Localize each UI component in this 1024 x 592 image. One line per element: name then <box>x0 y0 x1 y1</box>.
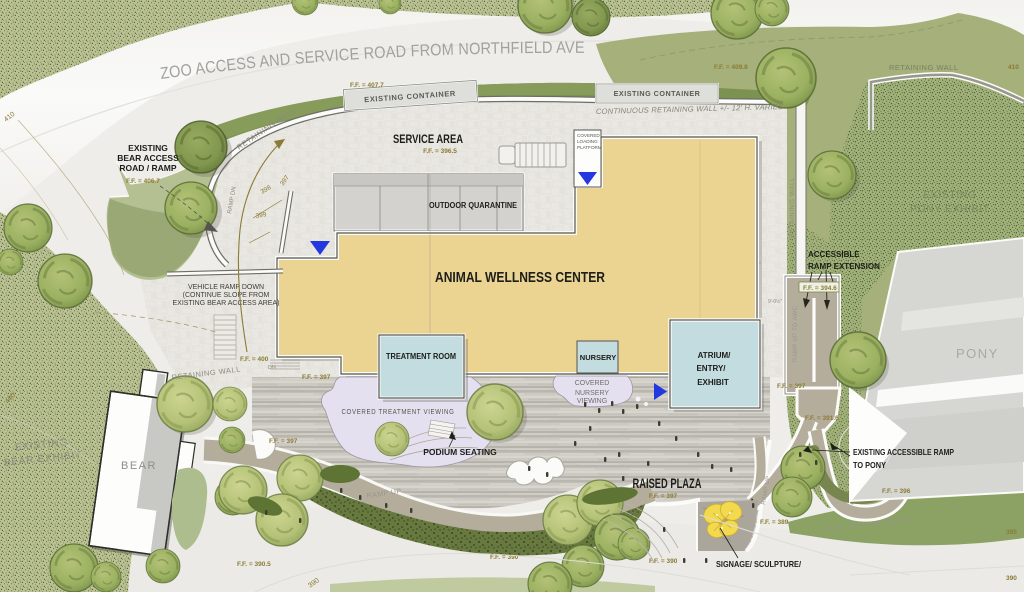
svg-text:F.F. = 394.6: F.F. = 394.6 <box>803 285 837 292</box>
svg-text:F.F. = 397: F.F. = 397 <box>777 383 806 390</box>
svg-text:EXISTING CONTAINER: EXISTING CONTAINER <box>614 89 701 98</box>
svg-text:ACCESSIBLE: ACCESSIBLE <box>808 250 860 259</box>
svg-text:F.F. = 390.5: F.F. = 390.5 <box>237 561 271 568</box>
svg-text:ANIMAL WELLNESS CENTER: ANIMAL WELLNESS CENTER <box>435 270 605 286</box>
svg-text:VIEWING: VIEWING <box>577 398 607 405</box>
svg-text:ENTRY/: ENTRY/ <box>696 364 726 373</box>
svg-text:NURSERY: NURSERY <box>580 353 616 362</box>
svg-text:BEAR ACCESS: BEAR ACCESS <box>117 153 179 163</box>
svg-text:395: 395 <box>1006 529 1017 536</box>
svg-text:RAMP UP TO AWC: RAMP UP TO AWC <box>793 305 799 362</box>
svg-text:PLATFORM: PLATFORM <box>577 145 602 150</box>
svg-text:410: 410 <box>1008 64 1019 71</box>
svg-text:390: 390 <box>1006 575 1017 582</box>
svg-text:EXISTING: EXISTING <box>128 143 168 153</box>
svg-text:SERVICE AREA: SERVICE AREA <box>393 132 463 146</box>
svg-text:SIGNAGE/ SCULPTURE/: SIGNAGE/ SCULPTURE/ <box>716 559 802 569</box>
svg-text:RETAINING WALL: RETAINING WALL <box>889 63 959 72</box>
svg-text:F.F. = 407.7: F.F. = 407.7 <box>350 82 384 89</box>
svg-text:F.F. = 396: F.F. = 396 <box>882 488 911 495</box>
svg-text:OUTDOOR QUARANTINE: OUTDOOR QUARANTINE <box>429 201 518 210</box>
svg-text:F.F. = 389: F.F. = 389 <box>760 519 789 526</box>
svg-text:ATRIUM/: ATRIUM/ <box>698 351 732 360</box>
svg-text:BEAR: BEAR <box>121 460 157 472</box>
svg-text:EXHIBIT: EXHIBIT <box>697 378 729 387</box>
svg-text:9′-0½″: 9′-0½″ <box>768 298 782 305</box>
svg-text:PODIUM SEATING: PODIUM SEATING <box>423 447 497 457</box>
svg-text:RAISED PLAZA: RAISED PLAZA <box>633 476 702 491</box>
svg-text:PONY EXHIBIT: PONY EXHIBIT <box>910 204 989 215</box>
svg-text:F.F. = 397: F.F. = 397 <box>649 493 678 500</box>
svg-text:VEHICLE RAMP DOWN: VEHICLE RAMP DOWN <box>188 284 264 291</box>
svg-text:TO PONY: TO PONY <box>853 460 886 470</box>
svg-text:F.F. = 391.6: F.F. = 391.6 <box>805 415 839 422</box>
svg-text:LOADING: LOADING <box>577 139 598 144</box>
svg-text:(CONTINUE SLOPE FROM: (CONTINUE SLOPE FROM <box>183 292 270 299</box>
svg-text:TREATMENT ROOM: TREATMENT ROOM <box>386 352 456 361</box>
svg-text:F.F. = 397: F.F. = 397 <box>302 374 331 381</box>
svg-text:NURSERY: NURSERY <box>575 390 609 397</box>
svg-text:F.F. = 400: F.F. = 400 <box>240 356 269 363</box>
svg-text:EXISTING BEAR ACCESS AREA): EXISTING BEAR ACCESS AREA) <box>173 300 280 307</box>
svg-text:F.F. = 409.8: F.F. = 409.8 <box>714 64 748 71</box>
svg-text:PONY: PONY <box>956 346 999 361</box>
svg-text:F.F. = 406.7: F.F. = 406.7 <box>126 178 160 185</box>
svg-text:F.F. = 396.5: F.F. = 396.5 <box>423 148 457 155</box>
svg-text:COVERED: COVERED <box>575 380 610 387</box>
svg-text:DN: DN <box>268 364 276 371</box>
svg-text:F.F. = 397: F.F. = 397 <box>269 438 298 445</box>
svg-text:EXISTING: EXISTING <box>923 190 976 201</box>
svg-text:RAMP EXTENSION: RAMP EXTENSION <box>808 262 880 271</box>
svg-text:EXISTING ACCESSIBLE RAMP: EXISTING ACCESSIBLE RAMP <box>853 447 954 457</box>
svg-text:COVERED: COVERED <box>577 133 600 138</box>
svg-text:ROAD / RAMP: ROAD / RAMP <box>119 163 176 173</box>
svg-text:RETAINING WALL: RETAINING WALL <box>789 177 796 238</box>
svg-text:COVERED TREATMENT VIEWING: COVERED TREATMENT VIEWING <box>342 407 455 416</box>
